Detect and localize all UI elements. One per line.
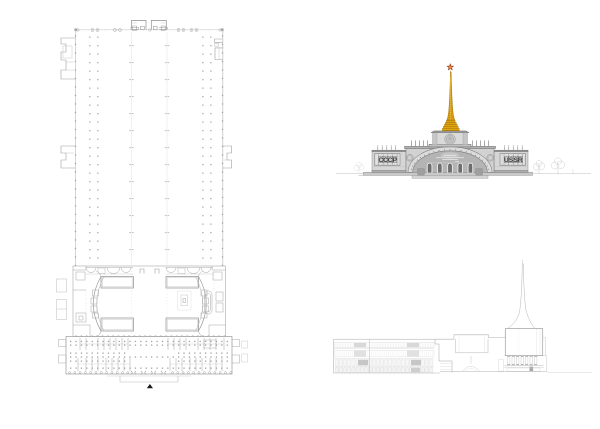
svg-text:R: R	[518, 157, 523, 164]
svg-text:Р: Р	[393, 157, 398, 164]
